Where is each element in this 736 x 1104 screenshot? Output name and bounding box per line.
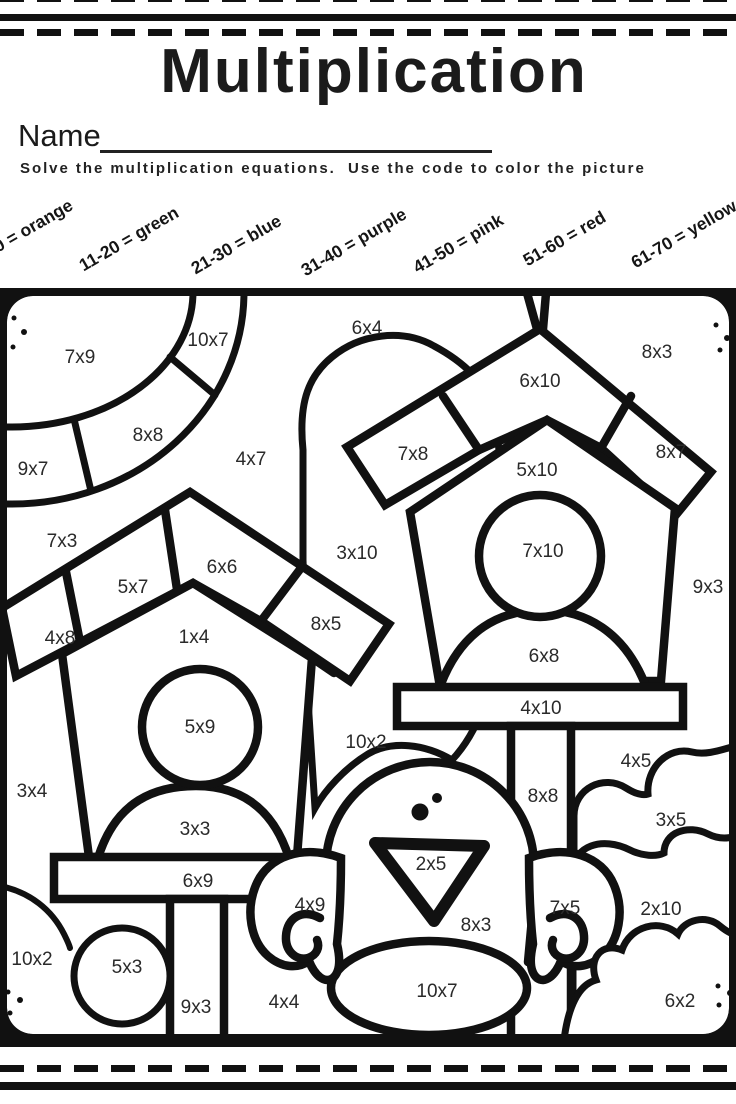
svg-text:6x9: 6x9 (183, 871, 214, 892)
svg-text:3x5: 3x5 (656, 810, 687, 831)
svg-text:4x10: 4x10 (520, 698, 561, 719)
svg-text:8x8: 8x8 (133, 425, 164, 446)
svg-text:3x3: 3x3 (180, 819, 211, 840)
svg-text:8x5: 8x5 (311, 614, 342, 635)
svg-text:6x10: 6x10 (519, 371, 560, 392)
svg-text:7x10: 7x10 (522, 541, 563, 562)
svg-text:5x3: 5x3 (112, 957, 143, 978)
svg-text:1x4: 1x4 (179, 627, 210, 648)
svg-text:2x10: 2x10 (640, 899, 681, 920)
svg-text:4x9: 4x9 (295, 895, 326, 916)
svg-text:6x8: 6x8 (529, 646, 560, 667)
svg-text:10x7: 10x7 (416, 981, 457, 1002)
svg-text:8x7: 8x7 (656, 442, 687, 463)
svg-text:9x3: 9x3 (693, 577, 724, 598)
svg-text:9x3: 9x3 (181, 997, 212, 1018)
svg-text:8x8: 8x8 (528, 786, 559, 807)
svg-text:8x3: 8x3 (461, 915, 492, 936)
svg-text:8x3: 8x3 (642, 342, 673, 363)
svg-text:6x6: 6x6 (207, 557, 238, 578)
svg-text:7x5: 7x5 (550, 898, 581, 919)
svg-text:7x9: 7x9 (65, 347, 96, 368)
svg-text:5x7: 5x7 (118, 577, 149, 598)
svg-text:7x8: 7x8 (398, 444, 429, 465)
svg-text:10x2: 10x2 (345, 732, 386, 753)
svg-text:4x5: 4x5 (621, 751, 652, 772)
svg-text:3x10: 3x10 (336, 543, 377, 564)
svg-text:4x7: 4x7 (236, 449, 267, 470)
svg-text:5x10: 5x10 (516, 460, 557, 481)
svg-text:6x4: 6x4 (352, 318, 383, 339)
svg-text:4x4: 4x4 (269, 992, 300, 1013)
svg-text:6x2: 6x2 (665, 991, 696, 1012)
svg-text:3x4: 3x4 (17, 781, 48, 802)
svg-text:10x2: 10x2 (11, 949, 52, 970)
svg-text:7x3: 7x3 (47, 531, 78, 552)
svg-text:10x7: 10x7 (187, 330, 228, 351)
svg-text:4x8: 4x8 (45, 628, 76, 649)
svg-text:5x9: 5x9 (185, 717, 216, 738)
svg-text:9x7: 9x7 (18, 459, 49, 480)
svg-text:2x5: 2x5 (416, 854, 447, 875)
